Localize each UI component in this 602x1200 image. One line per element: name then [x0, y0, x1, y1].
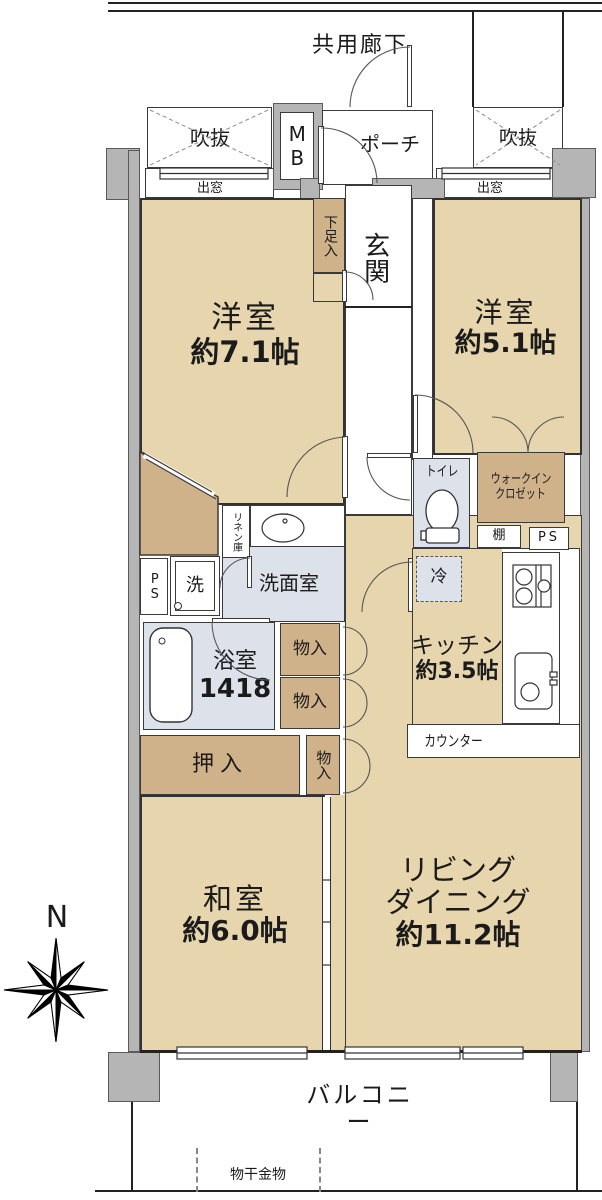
bathtub-icon — [150, 628, 192, 722]
floor-plan: 共用廊下 MB ポーチ 冷 カウンター 玄関 下足入 トイレ ウォークイ — [0, 0, 602, 1200]
washer-mark — [175, 603, 182, 610]
compass-icon — [4, 938, 108, 1042]
window-glyphs — [160, 168, 550, 1059]
door-arcs — [212, 47, 564, 793]
toilet-icon — [421, 490, 459, 543]
kitchen-sink-icon — [515, 653, 557, 709]
wic-left-shape — [140, 452, 218, 555]
stove-icon — [513, 565, 551, 607]
sink-icon — [262, 514, 304, 542]
partition-ticks — [322, 880, 331, 965]
void-right-cross — [476, 110, 560, 165]
void-left-cross — [150, 110, 268, 165]
plan-linework — [0, 0, 602, 1200]
